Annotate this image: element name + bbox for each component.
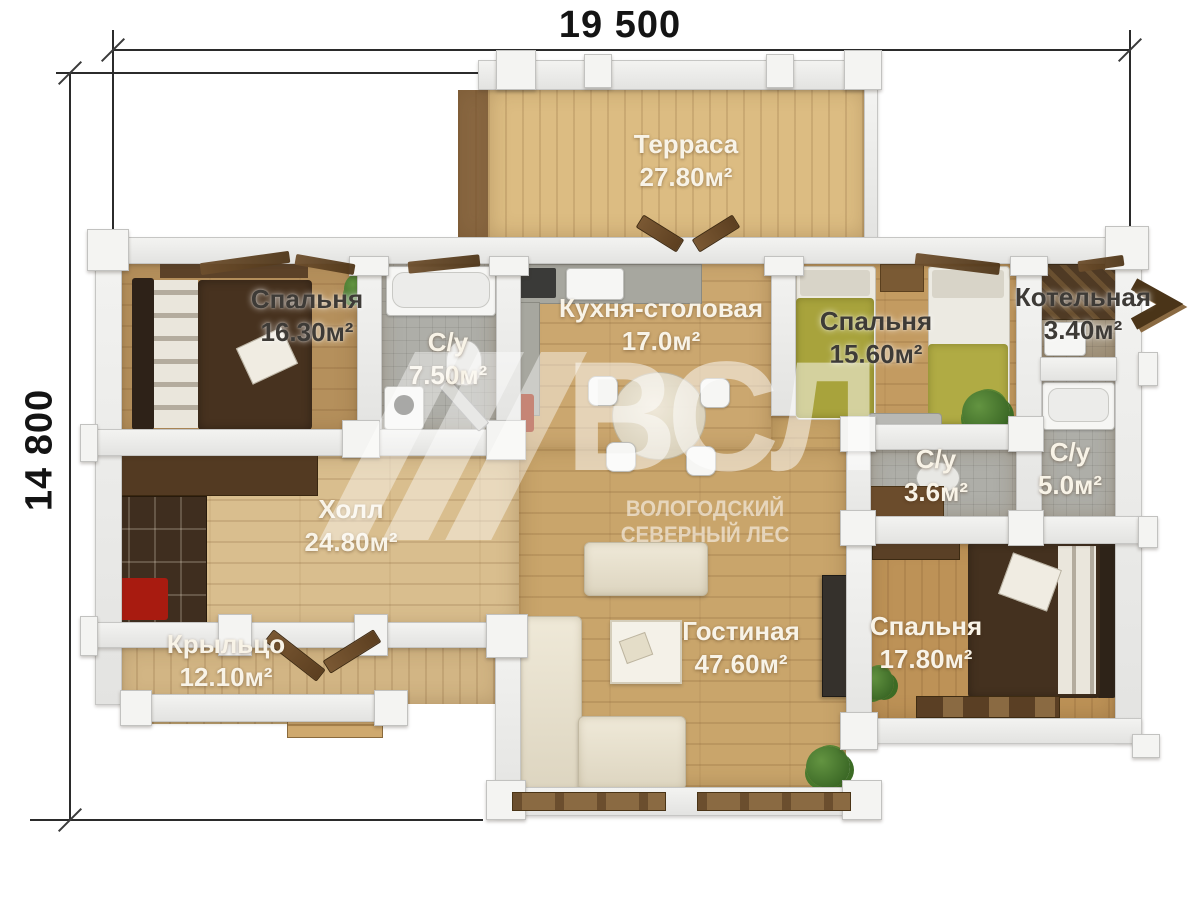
wall xyxy=(846,516,1142,544)
window-sill xyxy=(697,792,851,811)
dimension-line-top xyxy=(113,49,1130,51)
chair xyxy=(606,442,636,472)
chair xyxy=(700,378,730,408)
floor-plan: 19 500 14 800 xyxy=(0,0,1200,900)
wall xyxy=(771,262,796,416)
room-label-living: Гостиная47.60м² xyxy=(682,615,800,681)
post xyxy=(764,256,804,276)
dimension-width-label: 19 500 xyxy=(559,4,681,47)
extension-line xyxy=(112,30,114,235)
wall xyxy=(478,60,876,90)
room-label-terrace: Терраса27.80м² xyxy=(634,128,739,194)
room-label-boiler: Котельная3.40м² xyxy=(1015,281,1151,347)
wall xyxy=(95,622,509,648)
sofa-corner xyxy=(578,716,686,790)
post xyxy=(120,690,152,726)
bed-pillows xyxy=(154,280,198,428)
extension-line xyxy=(30,819,483,821)
post xyxy=(840,416,876,452)
coffee-table xyxy=(610,620,682,684)
window-sill xyxy=(512,792,666,811)
post xyxy=(840,712,878,750)
post xyxy=(496,50,536,90)
post xyxy=(840,510,876,546)
post xyxy=(80,616,98,656)
porch-railing xyxy=(128,694,406,722)
post xyxy=(1132,734,1160,758)
post xyxy=(80,424,98,462)
post xyxy=(584,54,612,88)
post xyxy=(766,54,794,88)
post xyxy=(1008,510,1044,546)
post xyxy=(1138,516,1158,548)
sofa xyxy=(584,542,708,596)
post xyxy=(374,690,408,726)
nightstand xyxy=(880,264,924,292)
bathtub xyxy=(386,266,496,316)
terrace-side-deck xyxy=(458,90,490,237)
room-label-bedroom1: Спальня16.30м² xyxy=(251,283,363,349)
extension-line xyxy=(56,72,490,74)
room-label-bathroom2: С/у3.6м² xyxy=(904,443,968,509)
bed-pillows xyxy=(800,270,870,296)
chair xyxy=(686,446,716,476)
bed-headboard xyxy=(132,278,154,430)
console-table xyxy=(118,452,318,496)
post xyxy=(486,614,528,658)
room-label-kitchen: Кухня-столовая17.0м² xyxy=(559,292,763,358)
post xyxy=(1138,352,1158,386)
room-label-porch: Крыльцо12.10м² xyxy=(167,628,285,694)
bed-pillows xyxy=(1058,546,1096,694)
dimension-line-left xyxy=(69,73,71,820)
dimension-height-label: 14 800 xyxy=(19,389,62,511)
post xyxy=(1010,256,1048,276)
rug xyxy=(916,696,1060,718)
room-label-bedroom2: Спальня15.60м² xyxy=(820,305,932,371)
bathtub xyxy=(1042,382,1115,430)
extension-line xyxy=(1129,30,1131,235)
room-label-bedroom3: Спальня17.80м² xyxy=(870,610,982,676)
wall xyxy=(864,88,878,240)
post xyxy=(489,256,529,276)
chair xyxy=(588,376,618,406)
post xyxy=(87,229,129,271)
wall xyxy=(1040,357,1117,381)
post xyxy=(844,50,882,90)
room-label-bathroom3: С/у5.0м² xyxy=(1038,436,1102,502)
wall xyxy=(846,718,1142,744)
